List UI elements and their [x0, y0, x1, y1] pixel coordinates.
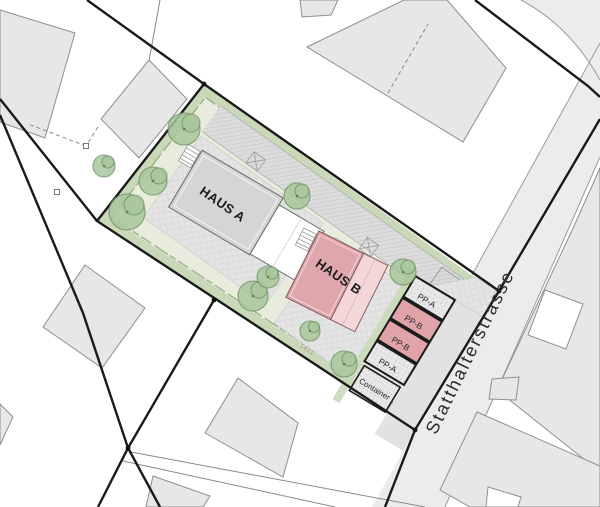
neighbor-building	[489, 377, 519, 400]
tree-symbol	[284, 183, 310, 209]
survey-marker	[55, 190, 60, 195]
survey-marker	[84, 144, 89, 149]
tree-symbol	[109, 194, 145, 230]
tree-symbol	[300, 321, 320, 341]
tree-symbol	[331, 351, 357, 377]
site-plan-drawing: HAUS A HAUS B PP-A PP-B PP-B PP-A Contai…	[0, 0, 600, 507]
tree-symbol	[257, 266, 279, 288]
tree-symbol	[139, 167, 167, 195]
site-plan-page: HAUS A HAUS B PP-A PP-B PP-B PP-A Contai…	[0, 0, 600, 507]
tree-symbol	[93, 155, 115, 177]
tree-symbol	[168, 113, 200, 145]
tree-symbol	[390, 259, 416, 285]
